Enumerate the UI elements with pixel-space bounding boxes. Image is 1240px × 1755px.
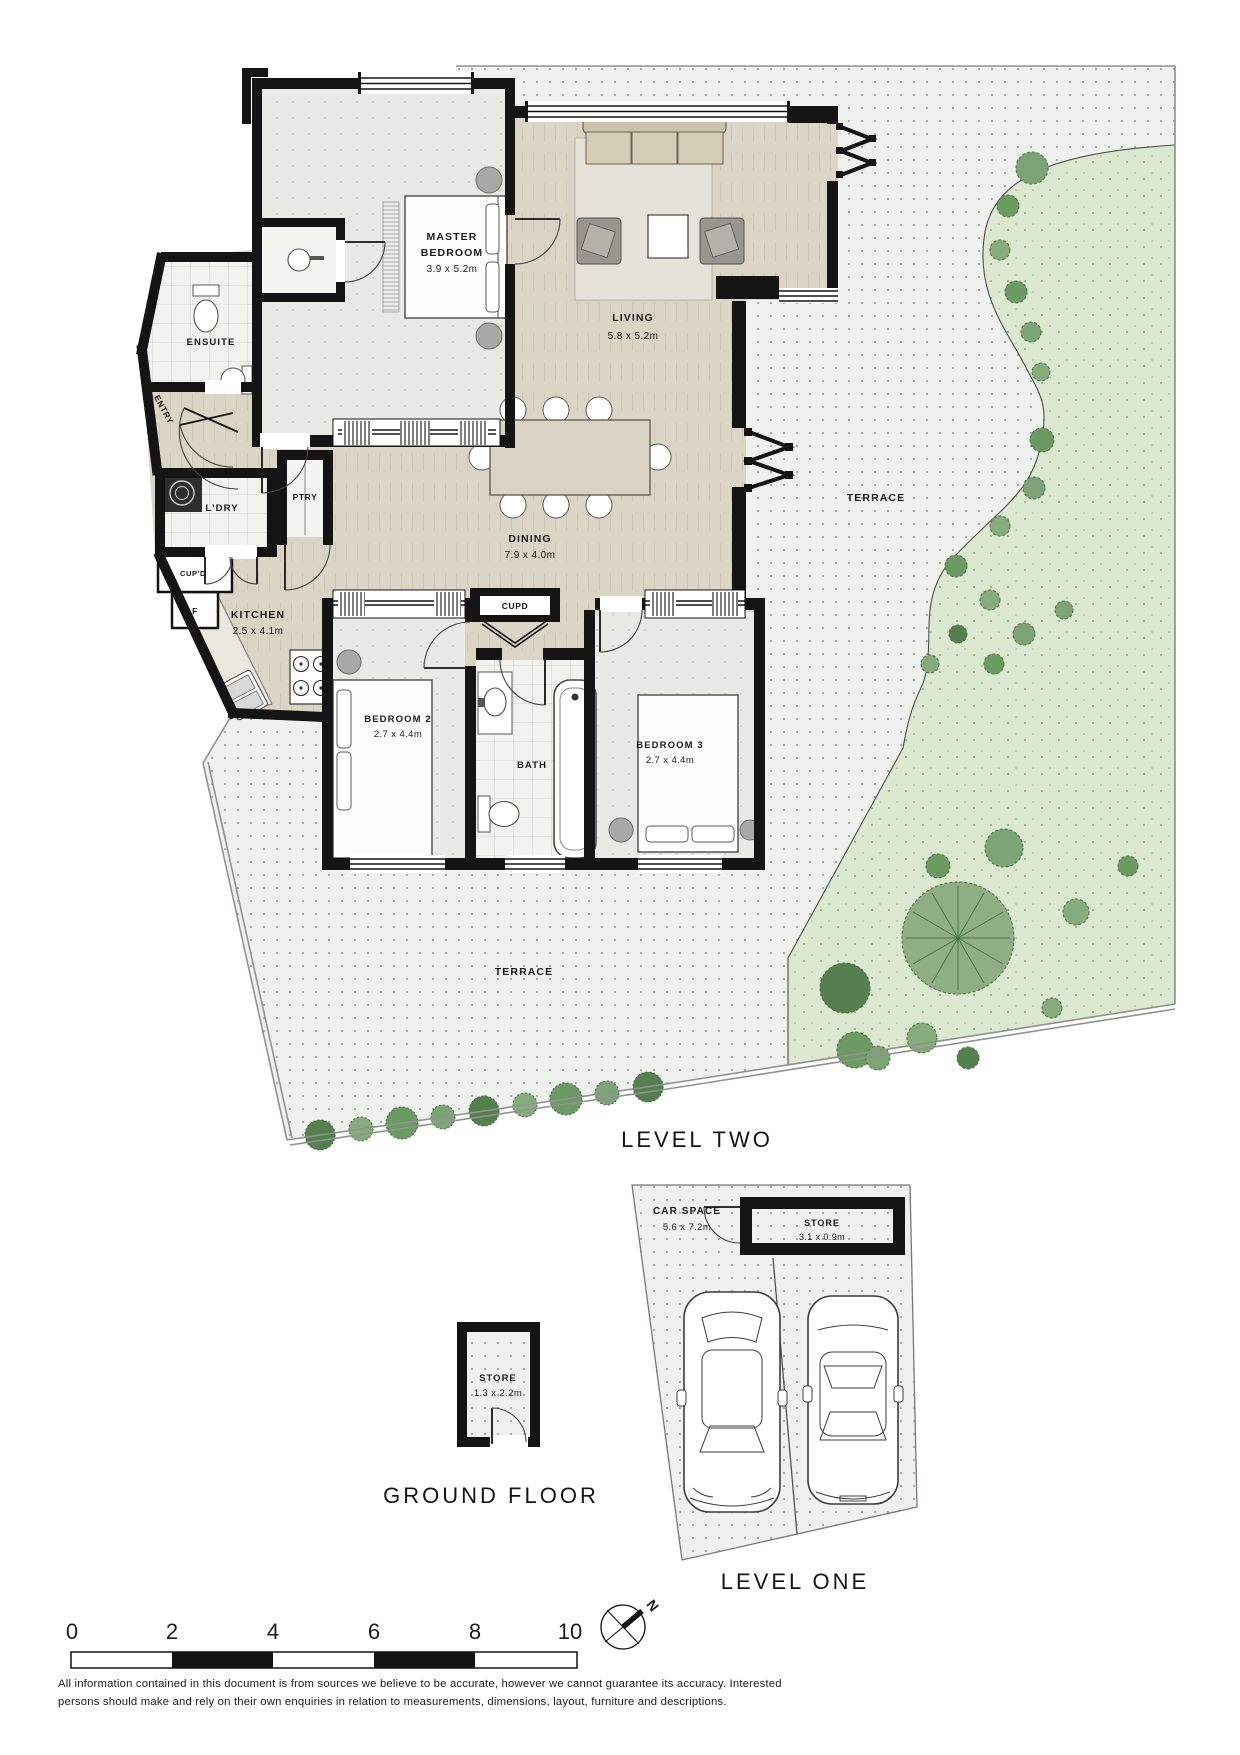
floorplan-drawing: MASTER BEDROOM 3.9 x 5.2m LIVING 5.8 x 5… <box>0 0 1240 1755</box>
tree-icon <box>1042 998 1062 1018</box>
level-two-plan: MASTER BEDROOM 3.9 x 5.2m LIVING 5.8 x 5… <box>142 66 1175 1152</box>
bedroom3-dims: 2.7 x 4.4m <box>646 755 694 766</box>
tree-icon <box>990 516 1010 536</box>
compass-icon: N <box>601 1596 662 1649</box>
bedroom3-label: BEDROOM 3 <box>636 740 703 751</box>
ground-floor-plan: STORE 1.3 x 2.2m GROUND FLOOR <box>383 1322 599 1508</box>
dining-label: DINING <box>508 533 551 545</box>
tree-icon <box>957 1047 979 1069</box>
tree-icon <box>1032 363 1050 381</box>
tree-icon <box>997 195 1019 217</box>
master-bedroom-dims: 3.9 x 5.2m <box>427 264 478 275</box>
tree-icon <box>945 555 967 577</box>
tree-icon <box>980 590 1000 610</box>
master-bedroom-label: MASTER <box>427 231 478 243</box>
washer <box>162 474 202 512</box>
toilet-bowl <box>489 802 519 827</box>
disclaimer: All information contained in this docume… <box>58 1678 782 1708</box>
nightstand <box>476 323 502 349</box>
living-label: LIVING <box>612 312 654 324</box>
living-dims: 5.8 x 5.2m <box>608 331 659 342</box>
dining-chair <box>586 397 612 423</box>
dining-dims: 7.9 x 4.0m <box>505 550 556 561</box>
scale-tick: 4 <box>267 1619 279 1644</box>
cupd-small-label: CUP'D <box>180 569 206 578</box>
nightstand <box>609 818 633 842</box>
dining-chair <box>543 492 569 518</box>
dining-chair <box>500 492 526 518</box>
scale-tick: 2 <box>166 1619 178 1644</box>
nightstand <box>476 167 502 193</box>
level-two-title: LEVEL TWO <box>621 1127 773 1152</box>
gf-store-dims: 1.3 x 2.2m <box>474 1388 522 1399</box>
tap <box>478 698 485 707</box>
tree-icon <box>984 654 1004 674</box>
level-one-title: LEVEL ONE <box>721 1569 869 1594</box>
scale-tick: 0 <box>66 1619 78 1644</box>
tree-icon <box>921 655 939 673</box>
kitchen-label: KITCHEN <box>231 609 285 621</box>
tub-tap <box>572 694 579 701</box>
coffee-table <box>648 215 688 258</box>
disclaimer-line1: All information contained in this docume… <box>58 1678 782 1690</box>
tree-icon <box>1005 281 1027 303</box>
dining-chair <box>586 492 612 518</box>
armchair <box>577 218 621 264</box>
scale-tick: 10 <box>558 1619 582 1644</box>
ground-floor-title: GROUND FLOOR <box>383 1483 599 1508</box>
basin <box>484 688 506 716</box>
toilet-bowl <box>194 300 218 332</box>
tree-icon <box>985 829 1023 867</box>
fridge-label: F <box>192 606 198 616</box>
tree-icon <box>1030 428 1054 452</box>
gf-store-floor <box>467 1332 530 1437</box>
tree-icon <box>926 854 950 878</box>
bath-label: BATH <box>517 760 547 771</box>
toilet-tank <box>478 796 490 832</box>
scale-bar: 0 2 4 6 8 10 <box>66 1619 582 1668</box>
master-bedroom-label2: BEDROOM <box>421 247 484 259</box>
scale-tick: 8 <box>469 1619 481 1644</box>
disclaimer-line2: persons should make and rely on their ow… <box>58 1696 727 1708</box>
tree-icon <box>1021 322 1041 342</box>
nightstand <box>337 650 361 674</box>
floorplan-page: MASTER BEDROOM 3.9 x 5.2m LIVING 5.8 x 5… <box>0 0 1240 1755</box>
tree-icon <box>1016 152 1048 184</box>
l1-store-dims: 3.1 x 0.9m <box>799 1232 845 1242</box>
ldry-label: L'DRY <box>205 503 238 514</box>
car-icon <box>803 1296 903 1504</box>
ptry-label: PTRY <box>293 492 318 502</box>
tree-icon <box>1013 623 1035 645</box>
car-icon <box>677 1292 787 1512</box>
scale-tick: 6 <box>368 1619 380 1644</box>
tree-icon <box>1055 601 1073 619</box>
ensuite-label: ENSUITE <box>187 337 236 348</box>
terrace-upper-label: TERRACE <box>847 492 905 504</box>
bedroom2-dims: 2.7 x 4.4m <box>374 729 422 740</box>
cupd-hall-label: CUPD <box>502 601 529 611</box>
bedroom2-bed <box>333 650 432 858</box>
l1-store-label: STORE <box>804 1218 840 1228</box>
armchair <box>700 218 744 264</box>
car-space-dims: 5.6 x 7.2m <box>663 1222 711 1233</box>
gf-store-label: STORE <box>479 1373 517 1384</box>
bedroom2-label: BEDROOM 2 <box>364 714 431 725</box>
dining-chair <box>543 397 569 423</box>
north-label: N <box>643 1596 662 1614</box>
basin <box>288 249 310 271</box>
laundry-fixtures <box>162 474 202 512</box>
terrace-lower-label: TERRACE <box>495 966 553 978</box>
level-one-plan: CAR SPACE 5.6 x 7.2m STORE 3.1 x 0.9m LE… <box>632 1185 917 1594</box>
kitchen-dims: 2.5 x 4.1m <box>233 626 284 637</box>
tree-icon <box>1118 856 1138 876</box>
car-space-label: CAR SPACE <box>653 1206 721 1217</box>
tap <box>310 256 324 260</box>
tree-icon <box>990 240 1010 260</box>
tree-icon <box>949 625 967 643</box>
tree-icon <box>820 963 870 1013</box>
toilet-tank <box>193 285 219 296</box>
tree-icon <box>1063 899 1089 925</box>
tree-icon <box>1023 477 1045 499</box>
